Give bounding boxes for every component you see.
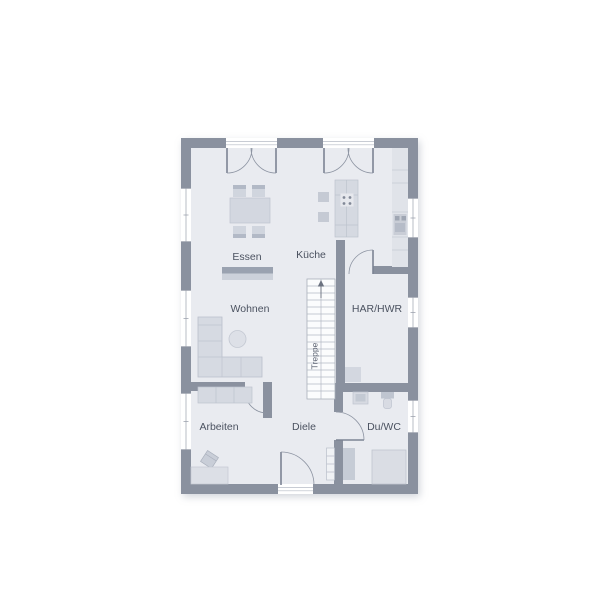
wall-har-duwc-divider [334,383,408,392]
dining-table [230,198,270,223]
bar-stool [318,212,329,222]
oven-knob [395,216,400,221]
wall-duwc-left-lower [334,440,343,484]
room-label-treppe: Treppe [310,342,320,369]
french-door-1-threshold [226,138,277,148]
chair-back [252,185,265,189]
room-label-kueche: Küche [296,249,326,261]
oven-door [395,223,405,232]
room-label-essen: Essen [232,251,261,263]
chair-back [233,185,246,189]
room-label-diele: Diele [292,421,316,433]
floor-plan-canvas: Treppe [181,138,418,494]
office-desk [191,467,228,484]
utility-area [345,367,361,382]
room-label-arbeiten: Arbeiten [199,421,238,433]
chair-back [252,234,265,238]
floor [191,148,408,484]
washbasin-bowl [356,394,366,402]
chair-back [233,234,246,238]
coffee-table [229,331,246,348]
shower [372,450,406,484]
sideboard-top [222,267,273,274]
cooktop-icon [341,194,354,207]
toilet-icon [384,399,392,409]
cooktop-burner [349,202,352,205]
entry-threshold [278,484,313,494]
cooktop-burner [343,202,346,205]
windows-left [181,188,191,450]
french-door-2-threshold [323,138,374,148]
room-label-wohnen: Wohnen [231,303,270,315]
toilet-tank [381,392,394,399]
bath-cabinet [343,448,355,480]
cooktop-burner [343,196,346,199]
floor-plan-svg: Treppe [181,138,418,494]
chair-seat [233,189,246,197]
room-label-du-wc: Du/WC [367,421,401,433]
staircase: Treppe [307,279,335,399]
chair-seat [233,226,246,234]
sideboard-body [222,274,273,281]
room-label-har-hwr: HAR/HWR [352,303,403,315]
kitchen-counter [392,148,408,267]
wall-har-top [373,266,408,274]
cooktop-burner [349,196,352,199]
bar-stool [318,192,329,202]
oven-knob [402,216,407,221]
office-shelf [198,387,252,403]
washing-machine [345,367,361,382]
wall-kitchen-har-divider [336,240,345,392]
chair-seat [252,226,265,234]
chair-seat [252,189,265,197]
